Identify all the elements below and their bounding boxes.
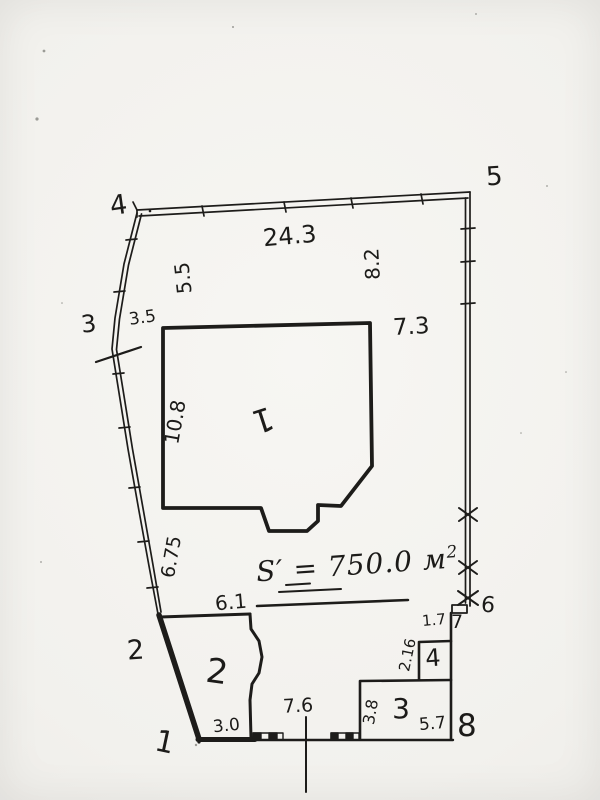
dimension-building1-right: 7.3 <box>392 315 430 340</box>
boundary-point2-to-point1-wall <box>159 615 199 739</box>
point-8-label: 8 <box>457 711 477 742</box>
area-prime: ′ <box>275 554 285 587</box>
point-5-label: 5 <box>485 163 503 190</box>
boundary-right-side <box>458 192 478 605</box>
dimension-road-width: 7.6 <box>283 696 314 717</box>
building-4-label: 4 <box>425 645 442 670</box>
boundary-top-side <box>133 192 470 217</box>
dimension-building4-top: 1.7 <box>421 612 446 629</box>
point-2-label: 2 <box>126 636 145 664</box>
plot-sketch-photo: 4 5 3 2 1 6 7 8 1 2 3 4 24.3 5.5 8.2 3.5… <box>0 0 600 800</box>
point-7-label: 7 <box>451 613 463 632</box>
point-3-label: 3 <box>80 311 98 336</box>
dimension-left-upper: 5.5 <box>171 261 194 295</box>
dimension-near-point3: 3.5 <box>128 308 157 329</box>
area-unit-superscript: 2 <box>446 541 459 562</box>
dimension-building3-bottom: 5.7 <box>418 715 446 734</box>
area-text-underlines <box>257 584 408 607</box>
paper-specks <box>35 13 566 746</box>
plot-sketch-drawing <box>0 0 600 800</box>
dimension-building2-top: 6.1 <box>214 591 247 614</box>
dimension-bottom-left: 3.0 <box>212 717 241 737</box>
point-6-label: 6 <box>480 594 496 617</box>
area-symbol: S <box>255 554 277 588</box>
dimension-top-side: 24.3 <box>262 222 317 251</box>
boundary-left-side <box>96 213 161 614</box>
dimension-right-upper: 8.2 <box>361 248 383 281</box>
point-4-label: 4 <box>108 191 129 220</box>
area-unit: м <box>422 542 448 577</box>
building-3-label: 3 <box>392 695 410 723</box>
dimension-building3-left: 3.8 <box>361 698 381 726</box>
